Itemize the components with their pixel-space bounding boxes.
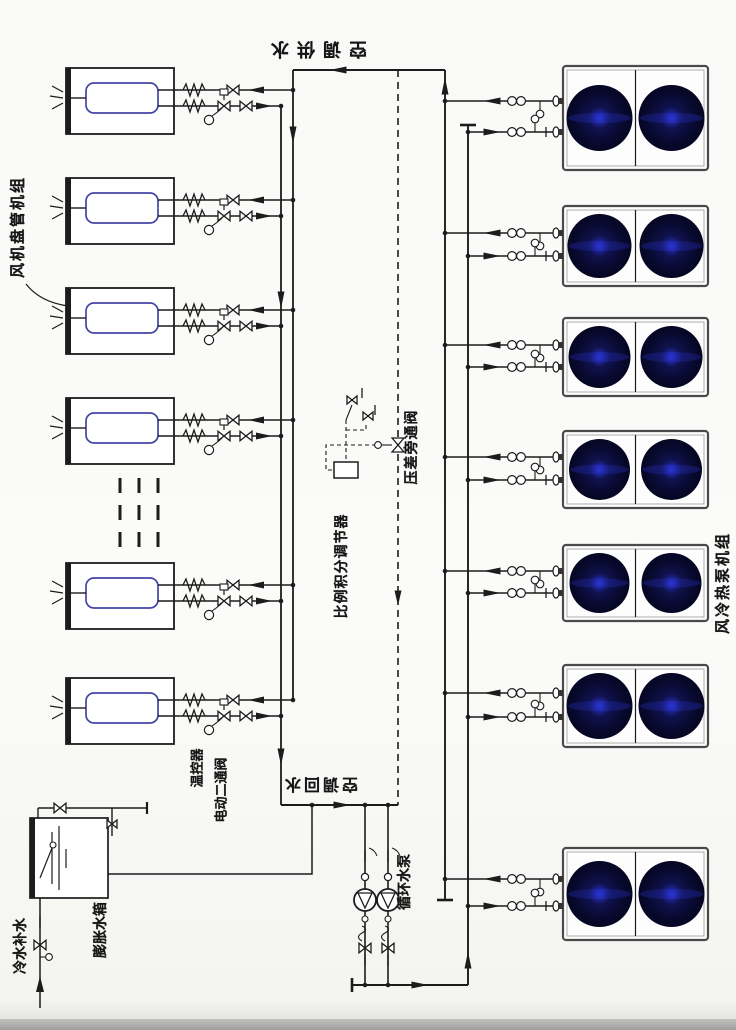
float-ball <box>50 842 56 848</box>
pipe-nub <box>558 454 563 460</box>
pipe-nub <box>558 568 563 574</box>
butterfly-valve-icon <box>508 902 517 911</box>
butterfly-valve-icon <box>508 252 517 261</box>
circulating-pump-branch <box>354 803 377 988</box>
butterfly-valve-icon <box>508 476 517 485</box>
pipe-nub <box>558 714 563 720</box>
pipe-junction <box>443 231 448 236</box>
airflow-mark <box>52 416 63 422</box>
heat-pump-unit <box>443 318 708 396</box>
fan-coil-unit <box>50 563 295 629</box>
casing-edge <box>66 563 71 629</box>
pi-controller-label: 比例积分调节器 <box>331 514 351 619</box>
flow-arrow <box>484 253 501 260</box>
fan-glow-streak <box>643 465 701 475</box>
valve-actuator <box>220 199 228 205</box>
valve-icon <box>363 412 373 420</box>
pressure-gauge-icon <box>531 889 539 897</box>
flow-arrow <box>256 103 272 110</box>
thermostat-icon <box>204 445 213 454</box>
pipe-nub <box>558 129 563 135</box>
flow-arrow <box>484 98 501 105</box>
pipe-nub <box>558 903 563 909</box>
flow-arrow <box>484 903 501 910</box>
butterfly-valve-icon <box>517 363 526 372</box>
flow-arrow <box>256 323 272 330</box>
flow-arrow <box>484 129 501 136</box>
fan-coil-unit <box>50 68 295 134</box>
pipe-junction <box>443 455 448 460</box>
butterfly-valve-icon <box>517 128 526 137</box>
flow-arrow <box>484 876 501 883</box>
expansion-tank <box>30 803 314 898</box>
valve-icon <box>218 711 230 721</box>
flow-arrow <box>484 230 501 237</box>
fan-coil-unit <box>50 678 295 744</box>
pressure-gauge-icon <box>531 350 539 358</box>
butterfly-valve-icon <box>517 252 526 261</box>
makeup-water-line <box>34 898 52 1008</box>
airflow-mark <box>52 196 63 202</box>
flow-arrow <box>484 454 501 461</box>
butterfly-valve-icon <box>508 875 517 884</box>
pipe-junction <box>466 365 471 370</box>
pipe-nub <box>558 98 563 104</box>
circulating-pump-label: 循环水泵 <box>394 854 414 910</box>
gauge-icon <box>46 954 53 961</box>
pipe-junction <box>466 130 471 135</box>
fan-coil-unit <box>50 398 295 464</box>
fan-glow-streak <box>643 578 700 588</box>
pipe-junction <box>466 254 471 259</box>
casing-edge <box>66 398 71 464</box>
flow-arrow <box>248 582 264 589</box>
pipe-nub <box>558 690 563 696</box>
pipe-junction <box>291 583 296 588</box>
pipe-junction <box>443 343 448 348</box>
pressure-gauge-icon <box>531 576 539 584</box>
butterfly-valve-icon <box>517 902 526 911</box>
valve-icon <box>218 596 230 606</box>
fan-glow-streak <box>571 578 628 588</box>
thermostat-link <box>212 603 222 611</box>
pipe-nub <box>558 253 563 259</box>
valve-icon <box>218 431 230 441</box>
pressure-gauge-icon <box>531 463 539 471</box>
coil <box>86 578 158 608</box>
fan-glow-streak <box>642 352 701 362</box>
pipe-junction <box>386 803 391 808</box>
butterfly-valve-icon <box>517 875 526 884</box>
flow-arrow <box>248 197 264 204</box>
thermostat-link <box>212 438 222 446</box>
thermostat-link <box>212 108 222 116</box>
pipe-junction <box>310 803 315 808</box>
valve-icon <box>240 596 252 606</box>
flow-arrow <box>36 976 44 992</box>
pipe-junction <box>291 308 296 313</box>
pipe-nub <box>558 477 563 483</box>
flow-arrow <box>330 67 347 74</box>
butterfly-valve-icon <box>517 453 526 462</box>
pipe-junction <box>443 99 448 104</box>
heat-pump-unit <box>443 431 708 508</box>
thermostat-icon <box>204 725 213 734</box>
airflow-mark <box>52 306 63 312</box>
heat-pump-unit <box>443 848 708 940</box>
pipe-nub <box>558 364 563 370</box>
valve-actuator <box>220 584 228 590</box>
tank-body <box>30 818 108 898</box>
expansion-tank-label: 膨胀水箱 <box>90 902 110 958</box>
butterfly-valve-icon <box>517 589 526 598</box>
airflow-mark <box>52 86 63 92</box>
thermostat-link <box>212 328 222 336</box>
pipe-junction <box>443 691 448 696</box>
continuation-ellipsis <box>120 478 158 547</box>
valve-icon <box>54 803 66 813</box>
butterfly-valve-icon <box>517 97 526 106</box>
airflow-mark <box>50 426 63 428</box>
butterfly-valve-icon <box>508 97 517 106</box>
valve-icon <box>218 211 230 221</box>
gauge-icon <box>361 873 368 880</box>
pipe-junction <box>279 599 284 604</box>
butterfly-valve-icon <box>517 476 526 485</box>
pipe-nub <box>558 590 563 596</box>
electric-two-way-valve-label: 电动二通阀 <box>211 757 230 822</box>
airflow-mark <box>52 713 63 719</box>
signal-line <box>346 424 366 430</box>
flow-arrow <box>290 127 297 144</box>
butterfly-valve-icon <box>508 453 517 462</box>
pipe-junction <box>279 324 284 329</box>
butterfly-valve-icon <box>508 341 517 350</box>
fan-coil-group-label: 风机盘管机组 <box>7 176 28 278</box>
valve-actuator <box>220 89 228 95</box>
makeup-water-label: 冷水补水 <box>10 918 30 974</box>
thermostat-icon <box>204 610 213 619</box>
pressure-gauge-icon <box>531 239 539 247</box>
fan-coil-unit <box>50 288 295 354</box>
fan-coil-unit <box>50 178 295 244</box>
fan-glow-streak <box>568 113 631 124</box>
fan-glow-streak <box>640 701 703 712</box>
flow-arrow <box>248 417 264 424</box>
pipe-junction <box>279 714 284 719</box>
flow-arrow <box>278 292 285 309</box>
flow-arrow <box>248 307 264 314</box>
piping-network <box>0 0 736 1030</box>
valve-icon <box>227 415 239 425</box>
casing-edge <box>66 678 71 744</box>
butterfly-valve-icon <box>517 713 526 722</box>
flow-arrow <box>256 213 272 220</box>
pipe-junction <box>291 88 296 93</box>
airflow-mark <box>50 706 63 708</box>
valve-icon <box>227 580 239 590</box>
pipe-junction <box>386 983 391 988</box>
pipe-junction <box>466 591 471 596</box>
flow-arrow <box>465 952 472 969</box>
thermostat-link <box>212 718 222 726</box>
flow-arrow <box>484 568 501 575</box>
pressure-bypass-valve-label: 压差旁通阀 <box>401 410 421 485</box>
valve-icon <box>227 85 239 95</box>
valve-icon <box>240 101 252 111</box>
airflow-mark <box>52 213 63 219</box>
thermostat-icon <box>204 225 213 234</box>
valve-icon <box>240 211 252 221</box>
airflow-mark <box>52 323 63 329</box>
flow-arrow <box>256 433 272 440</box>
flow-arrow <box>484 342 501 349</box>
heat-pump-unit <box>443 545 708 621</box>
pipe-junction <box>443 877 448 882</box>
flow-arrow <box>334 802 351 809</box>
pipe-junction <box>443 569 448 574</box>
casing-edge <box>66 288 71 354</box>
butterfly-valve-icon <box>508 567 517 576</box>
thermostat-icon <box>204 335 213 344</box>
valve-actuator <box>220 309 228 315</box>
flow-arrow <box>248 697 264 704</box>
flow-arrow <box>395 591 402 606</box>
heat-pump-unit <box>443 206 708 286</box>
butterfly-valve-icon <box>517 341 526 350</box>
pipe-junction <box>291 698 296 703</box>
check-valve-icon <box>362 916 368 922</box>
valve-icon <box>240 431 252 441</box>
butterfly-valve-icon <box>517 567 526 576</box>
pipe-nub <box>558 342 563 348</box>
butterfly-valve-icon <box>508 713 517 722</box>
flow-arrow <box>484 690 501 697</box>
fan-glow-streak <box>568 701 631 712</box>
valve-icon <box>218 101 230 111</box>
airflow-mark <box>50 316 63 318</box>
fan-glow-streak <box>568 889 631 900</box>
butterfly-valve-icon <box>517 689 526 698</box>
valve-icon <box>218 321 230 331</box>
valve-actuator <box>220 699 228 705</box>
pressure-gauge-icon <box>531 700 539 708</box>
pressure-gauge-icon <box>531 115 539 123</box>
valve-handle <box>369 848 377 856</box>
valve-icon <box>347 396 357 404</box>
heat-pump-unit <box>443 66 708 170</box>
pipe-junction <box>291 418 296 423</box>
valve-icon <box>227 195 239 205</box>
fan-glow-streak <box>571 465 629 475</box>
butterfly-valve-icon <box>508 589 517 598</box>
heat-pump-unit <box>443 665 708 747</box>
airflow-mark <box>52 103 63 109</box>
flow-arrow <box>484 590 501 597</box>
flow-arrow <box>248 87 264 94</box>
pipe-junction <box>279 214 284 219</box>
leader-line <box>26 284 68 306</box>
flow-arrow <box>484 714 501 721</box>
butterfly-valve-icon <box>508 229 517 238</box>
fan-glow-streak <box>640 889 703 900</box>
flow-arrow <box>256 598 272 605</box>
flow-arrow <box>484 364 501 371</box>
valve-actuator <box>375 442 382 449</box>
pipe-junction <box>291 198 296 203</box>
valve-icon <box>240 711 252 721</box>
butterfly-valve-icon <box>517 229 526 238</box>
pipe-junction <box>466 715 471 720</box>
gauge-icon <box>384 873 391 880</box>
airflow-mark <box>50 206 63 208</box>
pipe-nub <box>558 230 563 236</box>
flow-arrow <box>256 713 272 720</box>
check-valve-icon <box>385 916 391 922</box>
butterfly-valve-icon <box>508 128 517 137</box>
fan-coil-label-leader <box>26 284 68 306</box>
photo-bottom-edge <box>0 1019 736 1030</box>
sensor-stub <box>346 405 352 420</box>
fan-glow-streak <box>640 113 703 124</box>
pipe-junction <box>279 104 284 109</box>
thermostat-icon <box>204 115 213 124</box>
supply-water-label: 空调供水 <box>263 37 367 63</box>
flow-arrow <box>278 749 285 766</box>
bypass-control-cluster <box>326 388 404 478</box>
butterfly-valve-icon <box>508 689 517 698</box>
flow-arrow <box>412 982 429 989</box>
pipe-junction <box>363 803 368 808</box>
heat-pump-group-label: 风冷热泵机组 <box>712 532 733 634</box>
casing-edge <box>66 68 71 134</box>
coil <box>86 413 158 443</box>
coil <box>86 83 158 113</box>
airflow-mark <box>52 696 63 702</box>
thermostat-link <box>212 218 222 226</box>
pipe-junction <box>363 983 368 988</box>
fan-glow-streak <box>570 352 629 362</box>
valve-icon <box>227 695 239 705</box>
hvac-schematic-diagram: 风机盘管机组 风冷热泵机组 空调供水 空调回水 温控器 电动二通阀 比例积分调节… <box>0 0 736 1030</box>
tank-edge <box>30 818 35 898</box>
pipe-junction <box>466 478 471 483</box>
valve-icon <box>227 305 239 315</box>
fan-glow-streak <box>569 241 630 251</box>
pi-controller-box <box>334 462 358 478</box>
thermostat-label: 温控器 <box>187 748 206 787</box>
airflow-mark <box>52 598 63 604</box>
airflow-mark <box>50 96 63 98</box>
coil <box>86 693 158 723</box>
valve-icon <box>240 321 252 331</box>
butterfly-valve-icon <box>508 363 517 372</box>
valve-actuator <box>220 419 228 425</box>
casing-edge <box>66 178 71 244</box>
flow-arrow <box>484 477 501 484</box>
coil <box>86 193 158 223</box>
flow-arrow <box>442 78 449 95</box>
pipe-junction <box>279 434 284 439</box>
return-water-label: 空调回水 <box>282 774 358 798</box>
fan-glow-streak <box>641 241 702 251</box>
airflow-mark <box>52 433 63 439</box>
airflow-mark <box>50 591 63 593</box>
pipe-junction <box>466 904 471 909</box>
airflow-mark <box>52 581 63 587</box>
coil <box>86 303 158 333</box>
pipe-nub <box>558 876 563 882</box>
